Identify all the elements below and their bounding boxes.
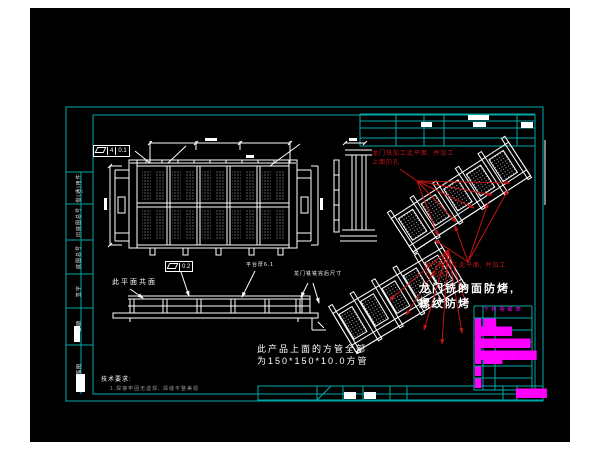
fcf-top: 4 0.1: [93, 145, 130, 157]
fcf-top-value: 0.1: [115, 147, 128, 155]
parts-table-row: █: [475, 368, 532, 376]
platform-note: 平台厚6.1: [246, 263, 274, 269]
parts-table-title: 下料明细表: [475, 308, 532, 314]
big-note-line2: 螺纹防烤: [419, 298, 471, 310]
tech-req-item: 1.焊接牢固无虚焊, 焊缝平整美观: [110, 387, 199, 393]
page: { "colors": { "background": "#000000", "…: [0, 0, 600, 450]
mill-after-note: 龙门铣铣完后尺寸: [294, 272, 342, 278]
big-note-line1: 龙门铣的面防烤,: [419, 283, 515, 295]
tech-req-title: 技术要求:: [101, 377, 132, 384]
tube-note-line1: 此产品上面的方管全部: [257, 345, 367, 355]
title-strip-mark: █████: [516, 390, 547, 399]
flatness-icon: [166, 262, 179, 272]
column-section-view: [334, 150, 377, 241]
tube-note-line2: 为150*150*10.0方管: [257, 357, 369, 367]
left-strip-cell: 日期: [76, 308, 84, 345]
fcf-side-value: 0.2: [179, 263, 192, 271]
fcf-top-datum: 4: [107, 147, 115, 155]
left-strip-cell: 旧底图总号: [75, 204, 83, 240]
red-note-top-line1: 龙门铣加工此平面, 并加工: [372, 151, 454, 158]
left-strip-cell: 签字: [75, 274, 83, 308]
parts-table-row: █ ███: [475, 356, 532, 364]
elevation-view: [113, 296, 326, 330]
coplanar-note: 此平面共面: [112, 279, 157, 287]
flatness-icon: [94, 146, 107, 156]
elevation-leaders: [130, 271, 319, 303]
left-strip-cell: 借(通)用件登记: [75, 172, 83, 204]
parts-table-row: █: [475, 380, 532, 388]
plan-hatch: [142, 170, 284, 240]
red-note-mid-line1: 龙门铣加工此平面, 并加工: [424, 263, 506, 270]
left-strip-cell: 描图: [76, 345, 84, 394]
left-strip-cell: 底图总号: [75, 240, 83, 274]
fcf-side: 0.2: [165, 261, 193, 272]
red-note-top-line2: 上面的孔: [372, 160, 400, 167]
red-note-mid-line2: 上面的孔: [424, 272, 452, 279]
